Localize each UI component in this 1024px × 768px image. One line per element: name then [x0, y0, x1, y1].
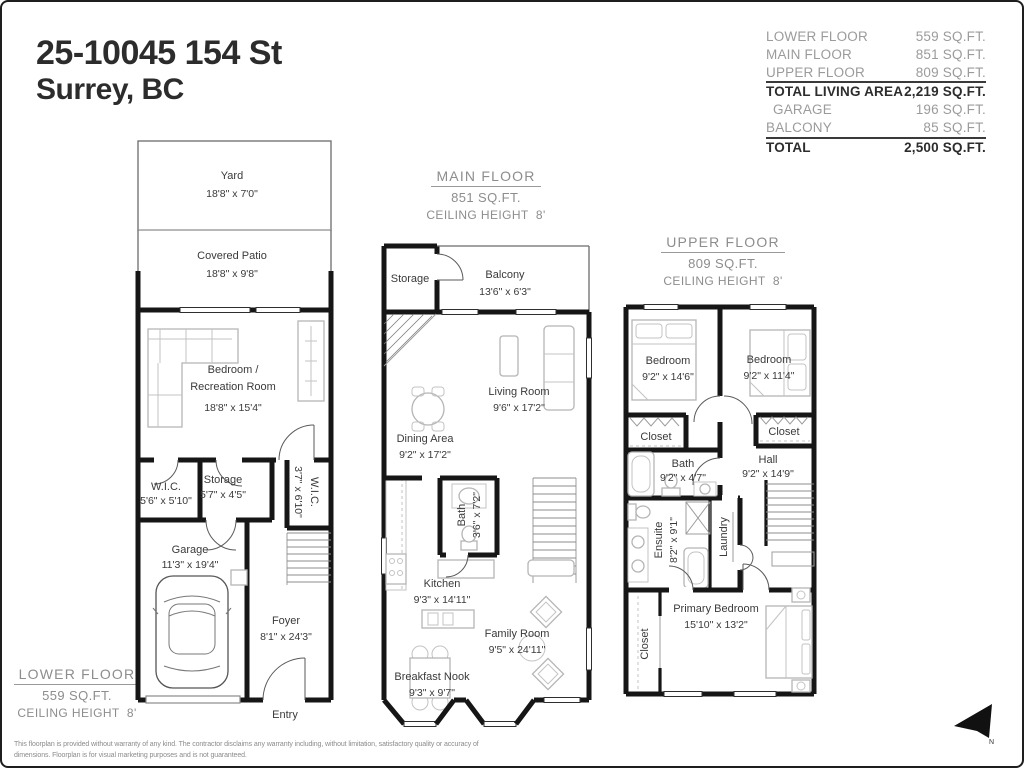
window — [180, 308, 250, 313]
room-dims-ensuite: 8'2" x 9'1" — [668, 517, 680, 563]
room-dims-kitchen: 9'3" x 14'11" — [414, 594, 471, 606]
stairs-icon — [287, 533, 331, 585]
shower-icon — [686, 502, 710, 534]
room-dims-rec: 18'8" x 15'4" — [204, 402, 262, 414]
dining-table-icon — [412, 387, 444, 431]
row-value: 85 SQ.FT. — [923, 120, 986, 136]
row-label: TOTAL — [766, 140, 811, 156]
car-icon — [153, 576, 231, 688]
stairs-icon — [766, 480, 814, 566]
address-line2: Surrey, BC — [36, 73, 282, 108]
room-label-storage: Storage — [204, 474, 243, 486]
lower-floor-plan: Yard 18'8" x 7'0" Covered Patio 18'8" x … — [128, 133, 343, 733]
row-label: MAIN FLOOR — [766, 47, 852, 63]
coffee-table-icon — [500, 336, 518, 376]
main-floor-caption: MAIN FLOOR 851 SQ.FT. CEILING HEIGHT 8' — [396, 168, 576, 222]
window — [587, 338, 592, 378]
row-label: GARAGE — [773, 102, 832, 118]
row-value: 559 SQ.FT. — [916, 29, 986, 45]
island-icon — [438, 560, 494, 578]
room-label-patio: Covered Patio — [197, 250, 267, 262]
floor-title: LOWER FLOOR — [14, 666, 141, 685]
room-dims-hall: 9'2" x 14'9" — [742, 468, 794, 480]
room-label-bedroom-left: Bedroom — [646, 355, 691, 367]
room-dims-bedroom-left: 9'2" x 14'6" — [642, 371, 694, 383]
row-value: 2,500 SQ.FT. — [904, 140, 986, 156]
row-value: 196 SQ.FT. — [916, 102, 986, 118]
row-label: BALCONY — [766, 120, 832, 136]
table-row: UPPER FLOOR809 SQ.FT. — [766, 64, 986, 82]
window — [544, 698, 580, 703]
wardrobe-icon — [298, 321, 324, 401]
table-row-total: TOTAL2,500 SQ.FT. — [766, 137, 986, 157]
disclaimer: This floorplan is provided without warra… — [14, 740, 484, 761]
nightstand-icon — [792, 588, 810, 602]
area-summary-table: LOWER FLOOR559 SQ.FT. MAIN FLOOR851 SQ.F… — [766, 28, 986, 156]
window — [644, 305, 678, 310]
floor-area: 559 SQ.FT. — [6, 688, 148, 703]
room-label-primary: Primary Bedroom — [673, 603, 759, 615]
window — [734, 692, 776, 697]
floor-ceiling: CEILING HEIGHT 8' — [6, 706, 148, 720]
room-label-balcony: Balcony — [485, 269, 525, 281]
bed-icon — [766, 588, 812, 692]
room-label-laundry: Laundry — [718, 517, 730, 557]
row-value: 809 SQ.FT. — [916, 65, 986, 81]
disclaimer-line1: This floorplan is provided without warra… — [14, 740, 484, 751]
family-room-furniture-icon — [519, 560, 574, 690]
table-row: MAIN FLOOR851 SQ.FT. — [766, 46, 986, 64]
table-row: BALCONY85 SQ.FT. — [766, 119, 986, 137]
room-dims-dining: 9'2" x 17'2" — [399, 449, 451, 461]
room-dims-wic-left: 5'6" x 5'10" — [140, 495, 192, 507]
yard-outline — [138, 141, 331, 230]
room-dims-nook: 9'3" x 9'7" — [409, 687, 455, 699]
room-label-kitchen: Kitchen — [424, 578, 461, 590]
room-label-dining: Dining Area — [397, 433, 455, 445]
row-label: TOTAL LIVING AREA — [766, 84, 903, 100]
north-arrow: N — [940, 695, 1000, 747]
room-label-bedroom-right: Bedroom — [747, 354, 792, 366]
cabinet-icon — [231, 570, 247, 585]
window — [442, 310, 478, 315]
row-label: LOWER FLOOR — [766, 29, 868, 45]
room-dims-living: 9'6" x 17'2" — [493, 402, 545, 414]
window — [587, 628, 592, 670]
room-label-hall: Hall — [759, 454, 778, 466]
row-value: 851 SQ.FT. — [916, 47, 986, 63]
room-dims-bath: 3'6" x 7'2" — [471, 492, 483, 538]
address-line1: 25-10045 154 St — [36, 34, 282, 73]
upper-floor-caption: UPPER FLOOR 809 SQ.FT. CEILING HEIGHT 8' — [631, 234, 815, 288]
table-row-total-living: TOTAL LIVING AREA2,219 SQ.FT. — [766, 81, 986, 101]
room-dims-wic-right: 3'7" x 6'10" — [292, 466, 304, 518]
room-dims-bath: 9'2" x 4'7" — [660, 472, 706, 484]
room-label-wic-right: W.I.C. — [308, 477, 320, 507]
room-dims-foyer: 8'1" x 24'3" — [260, 631, 312, 643]
floor-ceiling: CEILING HEIGHT 8' — [631, 274, 815, 288]
window — [664, 692, 702, 697]
floor-area: 851 SQ.FT. — [396, 190, 576, 205]
room-label-rec1: Bedroom / — [208, 364, 260, 376]
room-label-storage: Storage — [391, 273, 430, 285]
stair-rail — [772, 552, 814, 566]
north-arrow-icon — [954, 704, 992, 738]
room-label-yard: Yard — [221, 170, 243, 182]
room-label-rec2: Recreation Room — [190, 381, 276, 393]
room-label-family: Family Room — [485, 628, 550, 640]
window — [516, 310, 556, 315]
room-label-bath: Bath — [672, 458, 695, 470]
open-below-hatch — [384, 314, 436, 366]
room-label-foyer: Foyer — [272, 615, 300, 627]
garage-door — [146, 696, 240, 703]
room-dims-yard: 18'8" x 7'0" — [206, 188, 258, 200]
row-value: 2,219 SQ.FT. — [904, 84, 986, 100]
room-label-nook: Breakfast Nook — [394, 671, 470, 683]
lower-floor-caption: LOWER FLOOR 559 SQ.FT. CEILING HEIGHT 8' — [6, 666, 148, 720]
bay-window — [404, 722, 436, 727]
table-row: GARAGE196 SQ.FT. — [766, 101, 986, 119]
bay-window — [484, 722, 516, 727]
floor-area: 809 SQ.FT. — [631, 256, 815, 271]
disclaimer-line2: dimensions. Floorplan is for visual mark… — [14, 751, 484, 762]
room-label-bath: Bath — [456, 504, 468, 527]
floor-title: UPPER FLOOR — [661, 234, 785, 253]
room-dims-balcony: 13'6" x 6'3" — [479, 286, 531, 298]
upper-floor-plan: Bedroom 9'2" x 14'6" Bedroom 9'2" x 11'4… — [616, 300, 816, 700]
window — [750, 305, 786, 310]
room-dims-family: 9'5" x 24'11" — [489, 644, 546, 656]
table-row: LOWER FLOOR559 SQ.FT. — [766, 28, 986, 46]
room-dims-garage: 11'3" x 19'4" — [162, 559, 219, 571]
page-title: 25-10045 154 St Surrey, BC — [36, 34, 282, 108]
main-floor-plan: Storage Balcony 13'6" x 6'3" Living Room… — [376, 238, 596, 738]
floor-title: MAIN FLOOR — [431, 168, 540, 187]
room-label-wic-left: W.I.C. — [151, 481, 181, 493]
room-label-closet-right: Closet — [768, 426, 799, 438]
room-label-living: Living Room — [488, 386, 549, 398]
room-label-garage: Garage — [172, 544, 209, 556]
row-label: UPPER FLOOR — [766, 65, 865, 81]
room-label-closet-left: Closet — [640, 431, 671, 443]
room-label-entry: Entry — [272, 709, 298, 721]
north-label: N — [989, 739, 994, 746]
room-dims-patio: 18'8" x 9'8" — [206, 268, 258, 280]
room-label-closet-primary: Closet — [639, 628, 651, 659]
window — [256, 308, 300, 313]
room-dims-storage: 5'7" x 4'5" — [200, 489, 246, 501]
floor-ceiling: CEILING HEIGHT 8' — [396, 208, 576, 222]
room-dims-bedroom-right: 9'2" x 11'4" — [744, 370, 795, 382]
room-dims-primary: 15'10" x 13'2" — [684, 619, 748, 631]
room-label-ensuite: Ensuite — [653, 522, 665, 559]
